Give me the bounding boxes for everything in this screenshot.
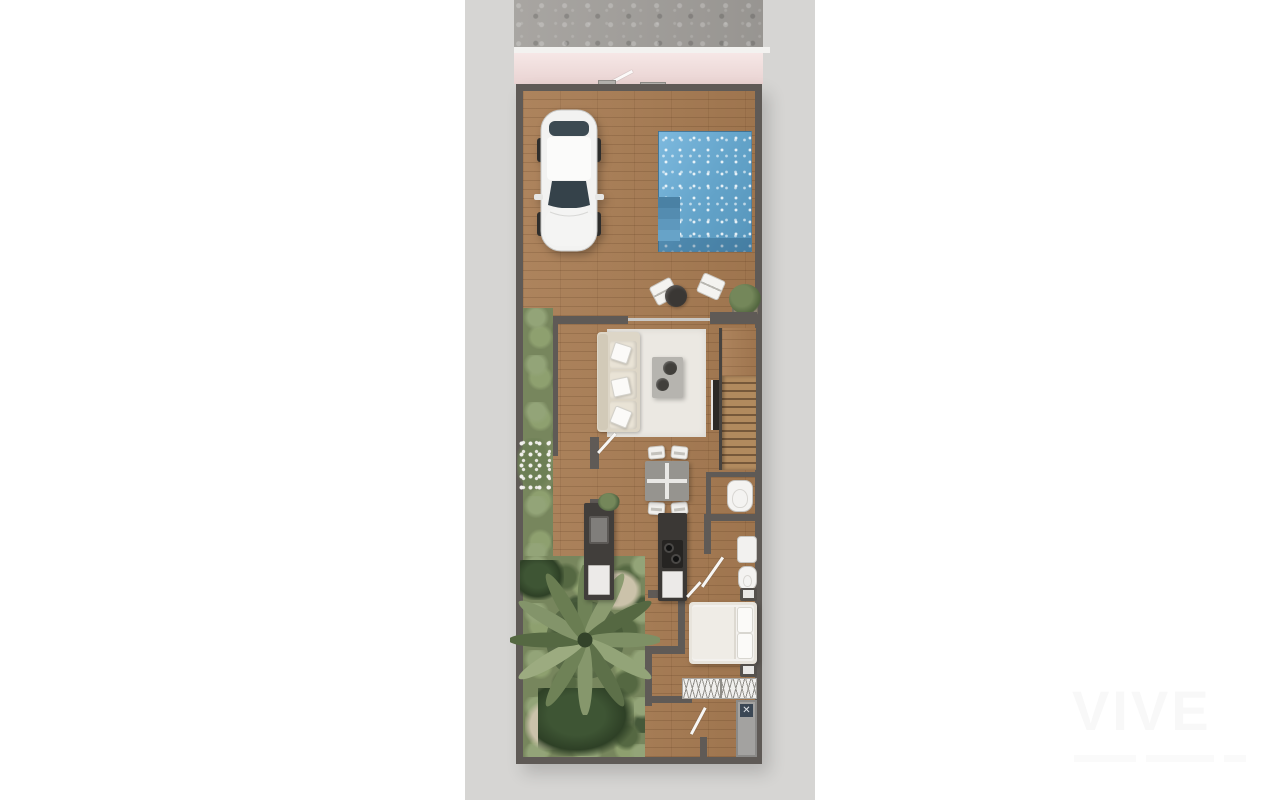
table-runner [665,463,669,499]
plant-foliage [729,284,761,314]
dining-table [645,461,689,501]
watermark-tagline-bar [1224,755,1246,762]
parked-car [534,108,604,253]
wardrobe [682,678,757,699]
watermark-brand: VIVE [1072,678,1212,743]
island-cabinet [662,571,683,598]
wall-segment [700,737,707,757]
car-top-view [534,108,604,253]
staircase [722,376,756,470]
watermark-tagline-bar [1146,755,1214,762]
round-side-table [665,285,687,307]
street-pavement [514,0,763,47]
pool-step [658,219,680,230]
walk-in-shower: ✕ [736,700,757,757]
bathroom-sink [737,536,757,563]
glass-sliding-door [628,318,710,321]
table-tray [663,361,677,375]
bed-pillow [737,607,753,633]
wall-segment [706,472,711,518]
sidewalk [514,53,763,84]
bed-pillow [737,633,753,659]
burner [666,545,672,551]
floorplan-page: ✕ VIVE [0,0,1280,800]
nightstand [740,664,757,677]
sofa-backrest [598,334,608,430]
watermark-tagline-bar [1074,755,1136,762]
wall-segment [710,312,757,324]
shower-head-icon: ✕ [740,704,753,717]
watermark: VIVE [1072,678,1272,778]
wall-segment [704,518,711,554]
flowering-bush [517,438,551,490]
dining-chair [670,445,688,460]
wall-segment [706,472,757,477]
table-tray [656,378,669,391]
pool-step [658,208,680,219]
burner [673,556,679,562]
wall-segment [552,316,628,324]
sofa-pillow [610,376,631,397]
guest-toilet [727,480,753,512]
stair-landing [722,328,756,376]
pool-step [658,230,680,241]
cooktop [662,540,683,568]
kitchen-sink [589,516,609,544]
garden-strip [523,308,553,560]
duvet [692,607,736,659]
nightstand [740,588,757,601]
pool-step [658,197,680,208]
wall-segment [704,514,757,521]
double-bed [689,602,757,664]
counter-plant [598,493,620,511]
stair-rail [719,328,722,470]
kitchen-appliance [588,565,610,595]
dining-chair [647,445,665,459]
wall-segment [678,596,685,650]
